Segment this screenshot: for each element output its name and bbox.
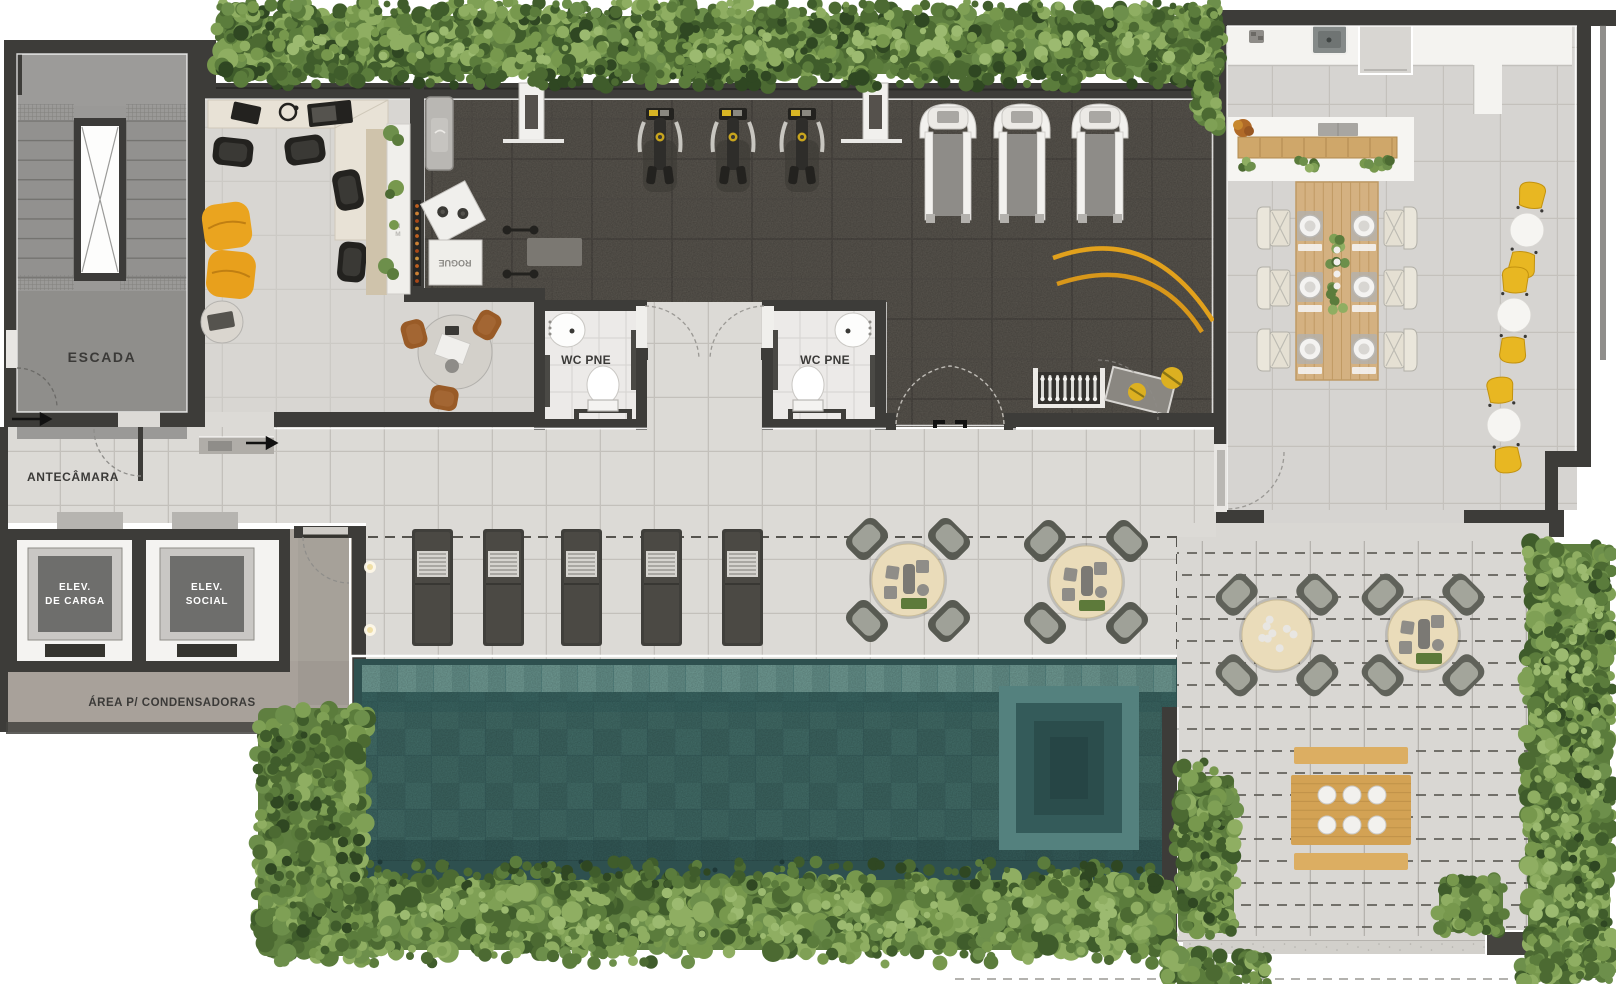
svg-text:ESCADA: ESCADA xyxy=(68,349,137,365)
svg-text:SOCIAL: SOCIAL xyxy=(186,596,229,607)
svg-text:DE CARGA: DE CARGA xyxy=(45,596,105,607)
svg-text:WC PNE: WC PNE xyxy=(800,353,850,367)
svg-text:ELEV.: ELEV. xyxy=(191,582,223,593)
svg-text:WC PNE: WC PNE xyxy=(561,353,611,367)
svg-text:ROGUE: ROGUE xyxy=(438,258,471,268)
svg-text:ELEV.: ELEV. xyxy=(59,582,91,593)
svg-text:ÁREA P/ CONDENSADORAS: ÁREA P/ CONDENSADORAS xyxy=(88,696,255,709)
svg-text:ANTECÂMARA: ANTECÂMARA xyxy=(27,469,119,484)
